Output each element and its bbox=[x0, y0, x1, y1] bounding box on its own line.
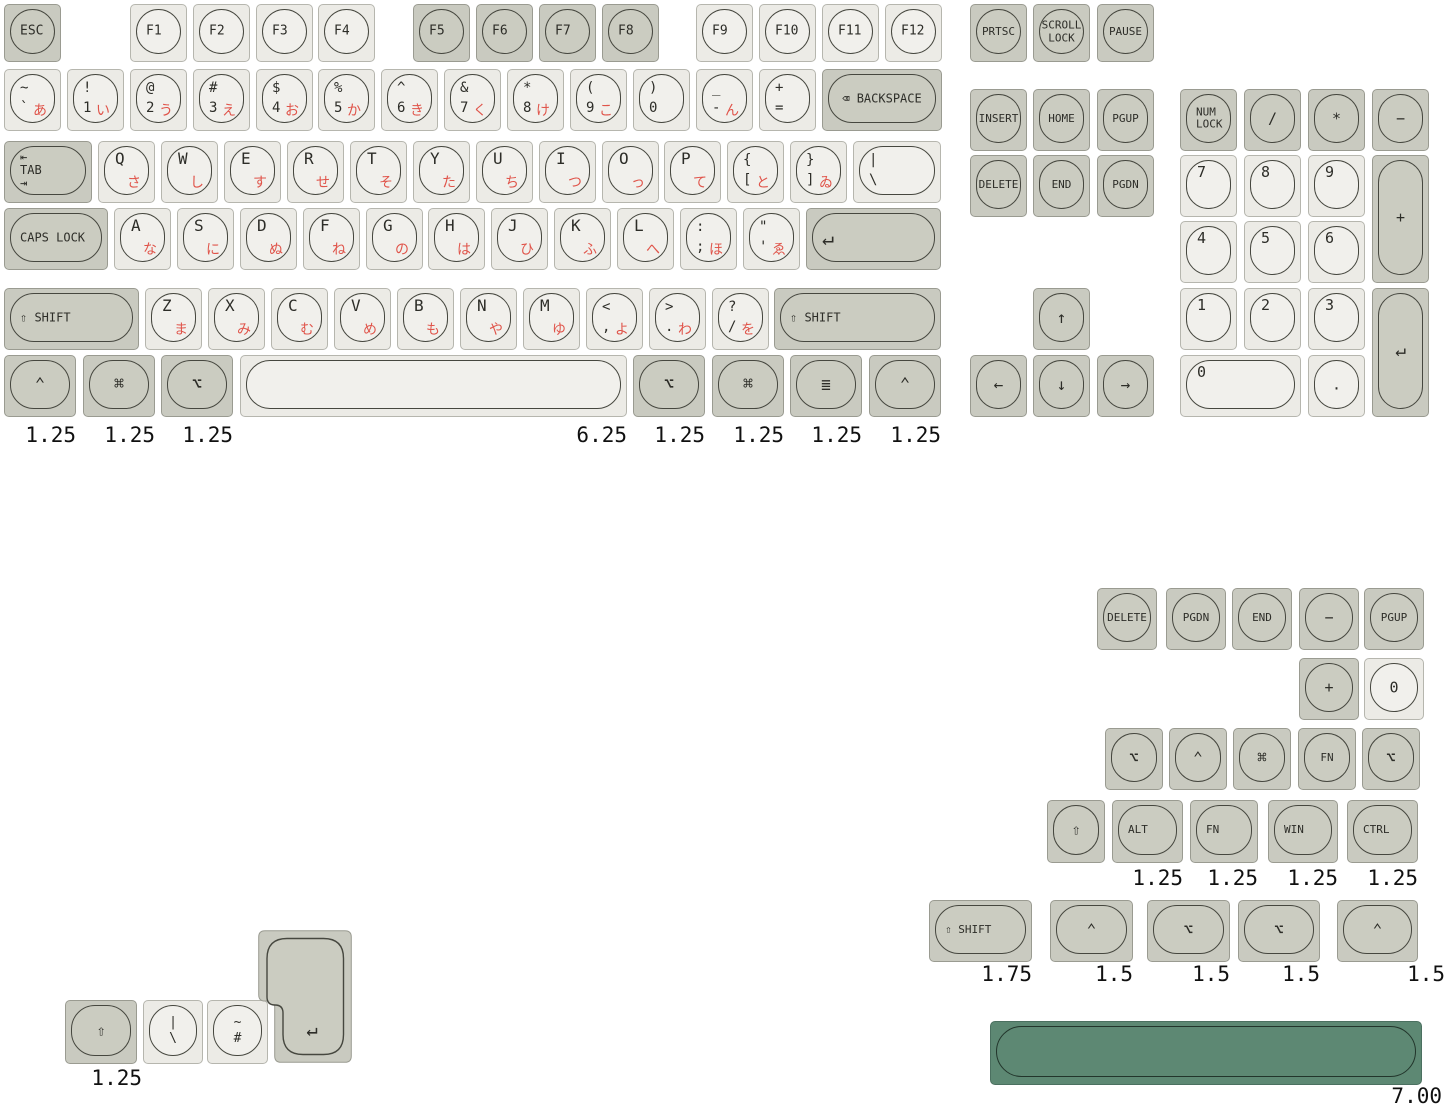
key-legend: | \ bbox=[869, 151, 877, 191]
key-quote[interactable]: " 'ゑ bbox=[743, 208, 800, 270]
key-legend: 8 bbox=[1261, 164, 1270, 181]
keycap-top: ALT bbox=[1118, 805, 1177, 855]
key-legend: ⌃ bbox=[11, 374, 69, 395]
keycap-top: Gの bbox=[372, 213, 417, 262]
key-lalt[interactable]: ⌥ bbox=[161, 355, 233, 417]
key-np-7[interactable]: 7 bbox=[1180, 155, 1237, 217]
key-i[interactable]: Iつ bbox=[539, 141, 596, 203]
keycap-top: END bbox=[1238, 593, 1286, 642]
key-legend: ⌥ bbox=[168, 374, 226, 395]
key-legend: # 3 bbox=[209, 79, 217, 119]
keycap-top: ESC bbox=[10, 9, 55, 54]
key-sublegend-kana: す bbox=[253, 176, 267, 190]
key-wide-alt-2[interactable]: ⌥ bbox=[1238, 900, 1320, 962]
keycap-top: ) 0 bbox=[639, 74, 684, 123]
keycap-top: . bbox=[1314, 360, 1359, 409]
key-o[interactable]: Oっ bbox=[602, 141, 659, 203]
key-s[interactable]: Sに bbox=[177, 208, 234, 270]
key-mod-ctrl-1[interactable]: ⌃ bbox=[1169, 728, 1227, 790]
size-label: 1.25 bbox=[733, 423, 784, 447]
key-legend: ? / bbox=[728, 298, 736, 338]
key-comma[interactable]: < ,よ bbox=[586, 288, 643, 350]
key-mod-fn-label[interactable]: FN bbox=[1190, 800, 1258, 863]
key-legend: F12 bbox=[901, 24, 924, 39]
key-legend: ↑ bbox=[1040, 308, 1083, 328]
key-wide-alt-1[interactable]: ⌥ bbox=[1147, 900, 1230, 962]
key-arrow-left[interactable]: ← bbox=[970, 355, 1027, 417]
key-u[interactable]: Uち bbox=[476, 141, 533, 203]
key-backspace[interactable]: ⌫ BACKSPACE bbox=[822, 69, 942, 131]
key-capslock[interactable]: CAPS LOCK bbox=[4, 208, 108, 270]
key-legend: O bbox=[619, 150, 629, 168]
size-label: 1.25 bbox=[91, 1066, 142, 1090]
key-green-spacebar[interactable] bbox=[990, 1021, 1422, 1085]
key-np-enter[interactable]: ↵ bbox=[1372, 288, 1429, 417]
key-period[interactable]: > .わ bbox=[649, 288, 706, 350]
keycap-top: ⇧ bbox=[71, 1005, 131, 1056]
key-sublegend-kana: そ bbox=[379, 176, 393, 190]
key-9[interactable]: ( 9こ bbox=[570, 69, 627, 131]
key-rctrl[interactable]: ⌃ bbox=[869, 355, 941, 417]
key-legend: > . bbox=[665, 298, 673, 338]
keycap-top: Iつ bbox=[545, 146, 590, 195]
key-mod-win[interactable]: WIN bbox=[1268, 800, 1338, 863]
key-alt-delete[interactable]: DELETE bbox=[1097, 588, 1157, 650]
key-legend: ⌘ bbox=[90, 374, 148, 395]
keycap-top: ≣ bbox=[796, 360, 856, 409]
key-sublegend-kana: あ bbox=[33, 104, 47, 118]
key-m[interactable]: Mゆ bbox=[523, 288, 580, 350]
key-f9[interactable]: F9 bbox=[696, 4, 753, 62]
keycap-top: F2 bbox=[199, 9, 244, 54]
key-p[interactable]: Pて bbox=[664, 141, 721, 203]
key-legend: F11 bbox=[838, 24, 861, 39]
key-np-8[interactable]: 8 bbox=[1244, 155, 1301, 217]
key-legend: N bbox=[477, 297, 487, 315]
key-f6[interactable]: F6 bbox=[476, 4, 533, 62]
key-legend: ⌘ bbox=[719, 374, 777, 395]
keycap-top: Lへ bbox=[623, 213, 668, 262]
key-g[interactable]: Gの bbox=[366, 208, 423, 270]
key-esc[interactable]: ESC bbox=[4, 4, 61, 62]
key-arrow-right[interactable]: → bbox=[1097, 355, 1154, 417]
key-sublegend-kana: ほ bbox=[709, 243, 723, 257]
key-wide-ctrl-1[interactable]: ⌃ bbox=[1050, 900, 1133, 962]
key-np-0[interactable]: 0 bbox=[1180, 355, 1301, 417]
key-semicolon[interactable]: : ;ほ bbox=[680, 208, 737, 270]
key-legend: PGDN bbox=[1104, 178, 1147, 192]
key-legend: 2 bbox=[1261, 297, 1270, 314]
keycap-top: Wし bbox=[167, 146, 212, 195]
key-rbracket[interactable]: } ]ゐ bbox=[790, 141, 847, 203]
key-pause[interactable]: PAUSE bbox=[1097, 4, 1154, 62]
key-f5[interactable]: F5 bbox=[413, 4, 470, 62]
key-legend: ⇧ bbox=[72, 1021, 130, 1040]
key-lctrl[interactable]: ⌃ bbox=[4, 355, 76, 417]
key-f10[interactable]: F10 bbox=[759, 4, 816, 62]
key-np-5[interactable]: 5 bbox=[1244, 221, 1301, 283]
keycap-layout: ESCF1F2F3F4F5F6F7F8F9F10F11F12~ `あ! 1い@ … bbox=[0, 0, 1445, 1108]
key-wide-shift[interactable]: ⇧ SHIFT bbox=[929, 900, 1032, 962]
key-alt-0[interactable]: 0 bbox=[1364, 658, 1424, 720]
key-menu[interactable]: ≣ bbox=[790, 355, 862, 417]
size-label: 1.5 bbox=[1095, 962, 1133, 986]
key-sublegend-kana: お bbox=[285, 104, 299, 118]
key-legend: F1 bbox=[146, 24, 162, 39]
key-f7[interactable]: F7 bbox=[539, 4, 596, 62]
key-legend: T bbox=[367, 150, 377, 168]
key-bl-pipe-backslash[interactable]: | \ bbox=[143, 1000, 203, 1064]
key-legend: F9 bbox=[712, 24, 728, 39]
keycap-top: " 'ゑ bbox=[749, 213, 794, 262]
key-sublegend-kana: わ bbox=[678, 323, 692, 337]
keycap-top: { [と bbox=[733, 146, 778, 195]
key-arrow-up[interactable]: ↑ bbox=[1033, 288, 1090, 350]
keycap-top: F11 bbox=[828, 9, 873, 54]
key-q[interactable]: Qさ bbox=[98, 141, 155, 203]
key-legend: D bbox=[257, 217, 267, 235]
key-f2[interactable]: F2 bbox=[193, 4, 250, 62]
key-j[interactable]: Jひ bbox=[491, 208, 548, 270]
keycap-top: PGUP bbox=[1103, 94, 1148, 143]
key-legend: P bbox=[681, 150, 691, 168]
key-arrow-down[interactable]: ↓ bbox=[1033, 355, 1090, 417]
key-scroll-lock[interactable]: SCROLL LOCK bbox=[1033, 4, 1090, 62]
key-sublegend-kana: し bbox=[190, 176, 204, 190]
key-r[interactable]: Rせ bbox=[287, 141, 344, 203]
key-legend: | \ bbox=[150, 1014, 196, 1047]
key-sublegend-kana: ゆ bbox=[552, 323, 566, 337]
key-legend: F3 bbox=[272, 24, 288, 39]
keycap-top: ⌥ bbox=[167, 360, 227, 409]
key-pgdn[interactable]: PGDN bbox=[1097, 155, 1154, 217]
key-minus[interactable]: _ -ん bbox=[696, 69, 753, 131]
keycap-top: Tそ bbox=[356, 146, 401, 195]
size-label: 1.25 bbox=[104, 423, 155, 447]
key-legend: − bbox=[1379, 109, 1422, 128]
key-lbracket[interactable]: { [と bbox=[727, 141, 784, 203]
key-legend: F10 bbox=[775, 24, 798, 39]
key-mod-alt-label[interactable]: ALT bbox=[1112, 800, 1183, 863]
keycap-top: ⌥ bbox=[1244, 905, 1314, 954]
key-f12[interactable]: F12 bbox=[885, 4, 942, 62]
key-f3[interactable]: F3 bbox=[256, 4, 313, 62]
key-np-3[interactable]: 3 bbox=[1308, 288, 1365, 350]
key-legend: FN bbox=[1206, 824, 1219, 836]
key-alt-pgdn[interactable]: PGDN bbox=[1166, 588, 1226, 650]
key-grave[interactable]: ~ `あ bbox=[4, 69, 61, 131]
keycap-top: ⇧ SHIFT bbox=[935, 905, 1026, 954]
key-t[interactable]: Tそ bbox=[350, 141, 407, 203]
key-legend: ⇧ bbox=[1054, 821, 1098, 840]
key-legend: ↵ bbox=[306, 1019, 317, 1041]
key-legend: 0 bbox=[1197, 364, 1206, 381]
keycap-top: − bbox=[1378, 94, 1423, 143]
keycap-top: + bbox=[1378, 160, 1423, 275]
key-7[interactable]: & 7く bbox=[444, 69, 501, 131]
key-rshift[interactable]: ⇧ SHIFT bbox=[774, 288, 941, 350]
key-y[interactable]: Yた bbox=[413, 141, 470, 203]
keycap-top: ⌫ BACKSPACE bbox=[828, 74, 936, 123]
key-legend: 9 bbox=[1325, 164, 1334, 181]
key-8[interactable]: * 8け bbox=[507, 69, 564, 131]
keycap-top: * bbox=[1314, 94, 1359, 143]
key-prtsc[interactable]: PRTSC bbox=[970, 4, 1027, 62]
key-sublegend-kana: ん bbox=[725, 104, 739, 118]
key-alt-minus[interactable]: − bbox=[1299, 588, 1359, 650]
keycap-top: ~ # bbox=[213, 1005, 262, 1056]
key-legend: M bbox=[540, 297, 550, 315]
key-mod-fn-1[interactable]: FN bbox=[1298, 728, 1356, 790]
key-legend: ⌫ BACKSPACE bbox=[829, 91, 935, 106]
keycap-top: 2 bbox=[1250, 293, 1295, 342]
key-l[interactable]: Lへ bbox=[617, 208, 674, 270]
keycap-top: ! 1い bbox=[73, 74, 118, 123]
key-sublegend-kana: ね bbox=[332, 243, 346, 257]
keycap-top: 8 bbox=[1250, 160, 1295, 209]
keycap-top: HOME bbox=[1039, 94, 1084, 143]
keycap-top: ~ `あ bbox=[10, 74, 55, 123]
key-legend: 1 bbox=[1197, 297, 1206, 314]
keycap-top: Xみ bbox=[214, 293, 259, 342]
keycap-top: WIN bbox=[1274, 805, 1332, 855]
key-enter[interactable]: ↵ bbox=[806, 208, 941, 270]
key-np-multiply[interactable]: * bbox=[1308, 89, 1365, 151]
key-legend: F5 bbox=[429, 24, 445, 39]
key-d[interactable]: Dぬ bbox=[240, 208, 297, 270]
key-sublegend-kana: か bbox=[347, 104, 361, 118]
key-legend: B bbox=[414, 297, 424, 315]
key-legend: CTRL bbox=[1363, 824, 1390, 836]
keycap-top: FN bbox=[1304, 733, 1350, 782]
keycap-top: ⌃ bbox=[1056, 905, 1127, 954]
key-0[interactable]: ) 0 bbox=[633, 69, 690, 131]
key-np-6[interactable]: 6 bbox=[1308, 221, 1365, 283]
key-sublegend-kana: ぬ bbox=[269, 243, 283, 257]
key-bl-shift[interactable]: ⇧ bbox=[65, 1000, 137, 1064]
key-mod-ctrl-label[interactable]: CTRL bbox=[1347, 800, 1418, 863]
key-4[interactable]: $ 4お bbox=[256, 69, 313, 131]
key-delete[interactable]: DELETE bbox=[970, 155, 1027, 217]
key-ralt[interactable]: ⌥ bbox=[633, 355, 705, 417]
keycap-top: ↑ bbox=[1039, 293, 1084, 342]
keycap-top: ⇤ TAB ⇥ bbox=[10, 146, 86, 195]
key-backslash[interactable]: | \ bbox=[853, 141, 941, 203]
keycap-top: : ;ほ bbox=[686, 213, 731, 262]
key-a[interactable]: Aな bbox=[114, 208, 171, 270]
key-spacebar[interactable] bbox=[240, 355, 627, 417]
key-sublegend-kana: ま bbox=[174, 323, 188, 337]
key-f1[interactable]: F1 bbox=[130, 4, 187, 62]
keycap-top: + = bbox=[765, 74, 810, 123]
key-5[interactable]: % 5か bbox=[318, 69, 375, 131]
key-legend: X bbox=[225, 297, 235, 315]
key-6[interactable]: ^ 6き bbox=[381, 69, 438, 131]
key-sublegend-kana: み bbox=[237, 323, 251, 337]
key-n[interactable]: Nや bbox=[460, 288, 517, 350]
keycap-top: ⌃ bbox=[1175, 733, 1221, 782]
keycap-top: ⌥ bbox=[1368, 733, 1414, 782]
key-legend: % 5 bbox=[334, 79, 342, 119]
key-legend: F4 bbox=[334, 24, 350, 39]
keycap-top: 0 bbox=[1370, 663, 1418, 712]
key-np-dot[interactable]: . bbox=[1308, 355, 1365, 417]
key-np-9[interactable]: 9 bbox=[1308, 155, 1365, 217]
key-legend: F bbox=[320, 217, 330, 235]
keycap-top: ↵ bbox=[1378, 293, 1423, 409]
key-legend: * 8 bbox=[523, 79, 531, 119]
key-sublegend-kana: め bbox=[363, 323, 377, 337]
key-alt-plus[interactable]: + bbox=[1299, 658, 1359, 720]
key-z[interactable]: Zま bbox=[145, 288, 202, 350]
key-sublegend-kana: む bbox=[300, 323, 314, 337]
key-np-2[interactable]: 2 bbox=[1244, 288, 1301, 350]
key-legend: $ 4 bbox=[272, 79, 280, 119]
key-insert[interactable]: INSERT bbox=[970, 89, 1027, 151]
keycap-top: Dぬ bbox=[246, 213, 291, 262]
key-np-plus[interactable]: + bbox=[1372, 155, 1429, 283]
keycap-top: Sに bbox=[183, 213, 228, 262]
key-sublegend-kana: な bbox=[143, 243, 157, 257]
keycap-top: ? /を bbox=[718, 293, 763, 342]
key-legend: PGUP bbox=[1104, 112, 1147, 126]
keycap-top: NUM LOCK bbox=[1186, 94, 1231, 143]
key-sublegend-kana: や bbox=[489, 323, 503, 337]
key-legend: ⌘ bbox=[1240, 748, 1284, 768]
key-home[interactable]: HOME bbox=[1033, 89, 1090, 151]
keycap-top: # 3え bbox=[199, 74, 244, 123]
key-legend: H bbox=[445, 217, 455, 235]
keycap-top: ^ 6き bbox=[387, 74, 432, 123]
size-label: 1.25 bbox=[25, 423, 76, 447]
key-e[interactable]: Eす bbox=[224, 141, 281, 203]
key-sublegend-kana: よ bbox=[615, 323, 629, 337]
key-h[interactable]: Hは bbox=[428, 208, 485, 270]
key-mod-alt-1[interactable]: ⌥ bbox=[1105, 728, 1163, 790]
key-iso-enter[interactable]: ↵ bbox=[258, 930, 352, 1063]
key-lcmd[interactable]: ⌘ bbox=[83, 355, 155, 417]
key-sublegend-kana: い bbox=[96, 104, 110, 118]
size-label: 1.25 bbox=[1132, 866, 1183, 890]
key-legend: ⇧ SHIFT bbox=[945, 923, 991, 935]
key-alt-end[interactable]: END bbox=[1232, 588, 1292, 650]
key-legend: → bbox=[1104, 375, 1147, 395]
key-legend: ⌃ bbox=[1344, 920, 1411, 940]
keycap-top: Fね bbox=[309, 213, 354, 262]
key-b[interactable]: Bも bbox=[397, 288, 454, 350]
key-legend: _ - bbox=[712, 79, 720, 119]
key-legend: ⌃ bbox=[876, 374, 934, 395]
keycap-top: Mゆ bbox=[529, 293, 574, 342]
size-label: 1.5 bbox=[1282, 962, 1320, 986]
key-legend: PRTSC bbox=[977, 25, 1020, 39]
key-legend: { [ bbox=[743, 151, 751, 191]
key-pgup[interactable]: PGUP bbox=[1097, 89, 1154, 151]
keycap-top: 5 bbox=[1250, 226, 1295, 275]
key-legend: CAPS LOCK bbox=[20, 231, 85, 244]
key-sublegend-kana: ふ bbox=[583, 243, 597, 257]
keycap-top bbox=[246, 360, 621, 409]
key-num-lock[interactable]: NUM LOCK bbox=[1180, 89, 1237, 151]
key-end[interactable]: END bbox=[1033, 155, 1090, 217]
keycap-top: Kふ bbox=[560, 213, 605, 262]
key-np-4[interactable]: 4 bbox=[1180, 221, 1237, 283]
key-legend: + = bbox=[775, 79, 783, 119]
key-mod-shift[interactable]: ⇧ bbox=[1047, 800, 1105, 863]
key-slash[interactable]: ? /を bbox=[712, 288, 769, 350]
keycap-top: 9 bbox=[1314, 160, 1359, 209]
key-legend: U bbox=[493, 150, 503, 168]
size-label: 6.25 bbox=[576, 423, 627, 447]
size-label: 1.25 bbox=[1207, 866, 1258, 890]
keycap-top: | \ bbox=[149, 1005, 197, 1056]
keycap-top: ⌘ bbox=[1239, 733, 1285, 782]
key-legend: S bbox=[194, 217, 204, 235]
key-legend: ALT bbox=[1128, 824, 1148, 836]
key-2[interactable]: @ 2う bbox=[130, 69, 187, 131]
key-f8[interactable]: F8 bbox=[602, 4, 659, 62]
key-f4[interactable]: F4 bbox=[318, 4, 375, 62]
key-3[interactable]: # 3え bbox=[193, 69, 250, 131]
key-legend: E bbox=[241, 150, 251, 168]
key-w[interactable]: Wし bbox=[161, 141, 218, 203]
key-1[interactable]: ! 1い bbox=[67, 69, 124, 131]
key-legend: ) 0 bbox=[649, 79, 657, 119]
key-mod-cmd[interactable]: ⌘ bbox=[1233, 728, 1291, 790]
key-legend: ↵ bbox=[1379, 340, 1422, 363]
key-legend: 4 bbox=[1197, 230, 1206, 247]
keycap-top: 6 bbox=[1314, 226, 1359, 275]
key-sublegend-kana: っ bbox=[631, 176, 645, 190]
keycap-top: F4 bbox=[324, 9, 369, 54]
key-legend: 0 bbox=[1371, 678, 1417, 697]
keycap-top: | \ bbox=[859, 146, 935, 195]
size-label: 1.25 bbox=[1367, 866, 1418, 890]
key-v[interactable]: Vめ bbox=[334, 288, 391, 350]
key-mod-alt-2[interactable]: ⌥ bbox=[1362, 728, 1420, 790]
keycap-top: F1 bbox=[136, 9, 181, 54]
key-sublegend-kana: き bbox=[410, 104, 424, 118]
key-np-minus[interactable]: − bbox=[1372, 89, 1429, 151]
key-sublegend-kana: ゑ bbox=[772, 243, 786, 257]
key-np-divide[interactable]: / bbox=[1244, 89, 1301, 151]
key-sublegend-kana: の bbox=[395, 243, 409, 257]
key-rcmd[interactable]: ⌘ bbox=[712, 355, 784, 417]
key-f11[interactable]: F11 bbox=[822, 4, 879, 62]
key-legend: I bbox=[556, 150, 566, 168]
key-c[interactable]: Cむ bbox=[271, 288, 328, 350]
key-sublegend-kana: え bbox=[222, 104, 236, 118]
keycap-top: Vめ bbox=[340, 293, 385, 342]
key-equals[interactable]: + = bbox=[759, 69, 816, 131]
keycap-top: SCROLL LOCK bbox=[1039, 9, 1084, 54]
keycap-top: CTRL bbox=[1353, 805, 1412, 855]
key-legend: C bbox=[288, 297, 298, 315]
keycap-top: F5 bbox=[419, 9, 464, 54]
key-f[interactable]: Fね bbox=[303, 208, 360, 270]
size-label: 1.25 bbox=[811, 423, 862, 447]
keycap-top: INSERT bbox=[976, 94, 1021, 143]
keycap-top: ⇧ SHIFT bbox=[780, 293, 935, 342]
keycap-top: Nや bbox=[466, 293, 511, 342]
key-tab[interactable]: ⇤ TAB ⇥ bbox=[4, 141, 92, 203]
key-k[interactable]: Kふ bbox=[554, 208, 611, 270]
key-alt-pgup[interactable]: PGUP bbox=[1364, 588, 1424, 650]
key-lshift[interactable]: ⇧ SHIFT bbox=[4, 288, 139, 350]
key-np-1[interactable]: 1 bbox=[1180, 288, 1237, 350]
key-x[interactable]: Xみ bbox=[208, 288, 265, 350]
key-wide-ctrl-2[interactable]: ⌃ bbox=[1337, 900, 1418, 962]
